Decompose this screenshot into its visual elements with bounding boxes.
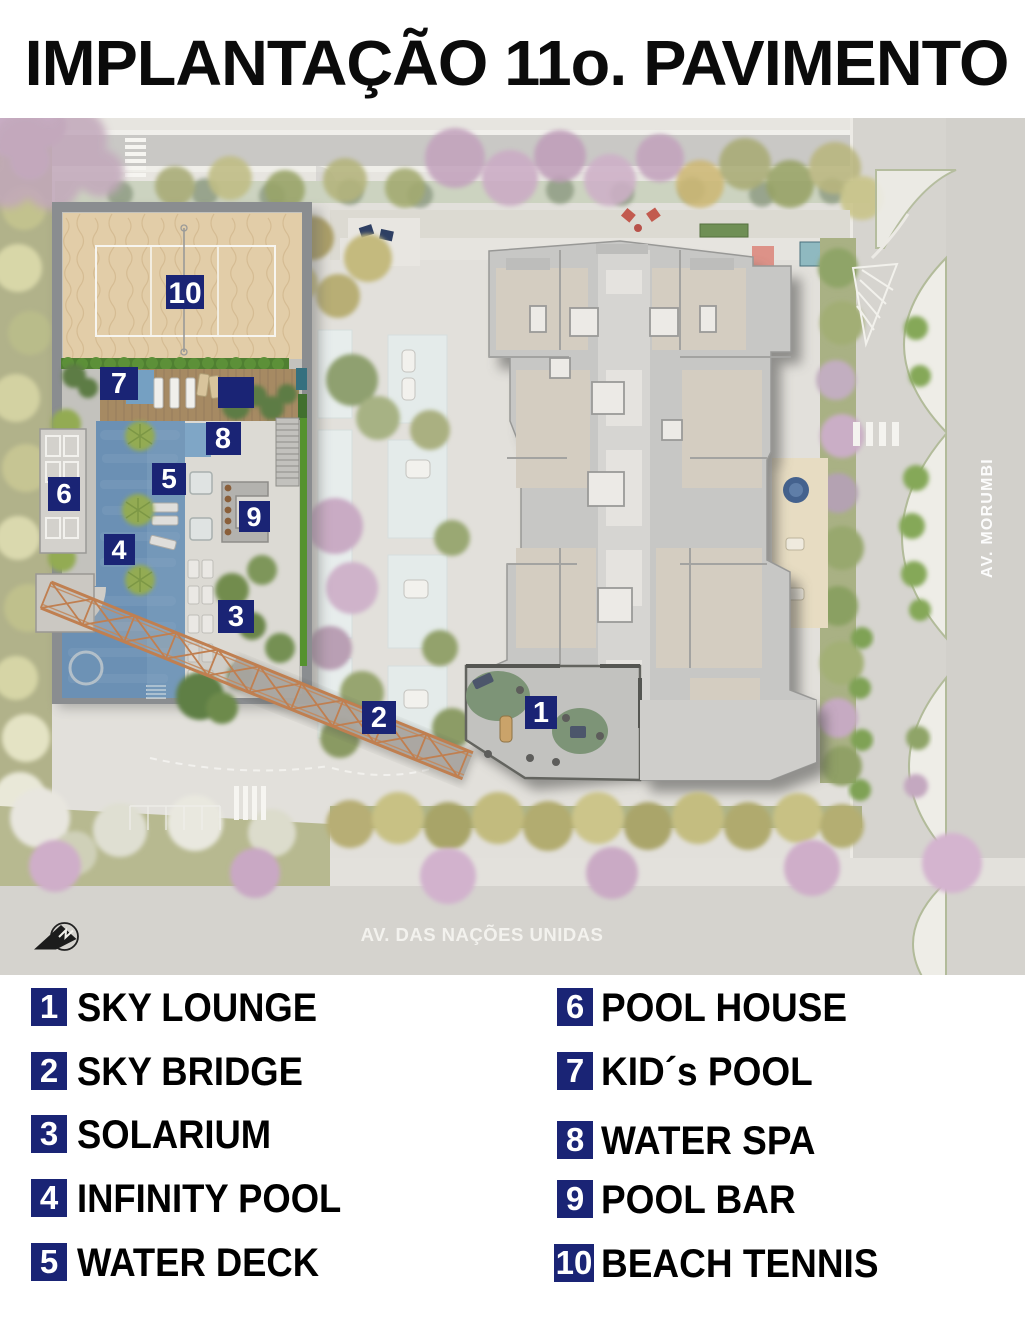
svg-text:1: 1	[533, 697, 549, 729]
svg-text:7: 7	[111, 368, 127, 400]
svg-text:5: 5	[161, 463, 177, 494]
svg-text:4: 4	[111, 535, 126, 565]
svg-text:AV. MORUMBI: AV. MORUMBI	[979, 458, 996, 578]
svg-text:2: 2	[371, 702, 387, 734]
svg-text:AV. DAS NAÇÕES UNIDAS: AV. DAS NAÇÕES UNIDAS	[361, 924, 604, 945]
svg-text:9: 9	[246, 502, 261, 532]
svg-text:3: 3	[228, 601, 244, 633]
svg-text:6: 6	[56, 478, 72, 509]
svg-text:8: 8	[215, 423, 231, 455]
svg-text:10: 10	[168, 277, 201, 310]
